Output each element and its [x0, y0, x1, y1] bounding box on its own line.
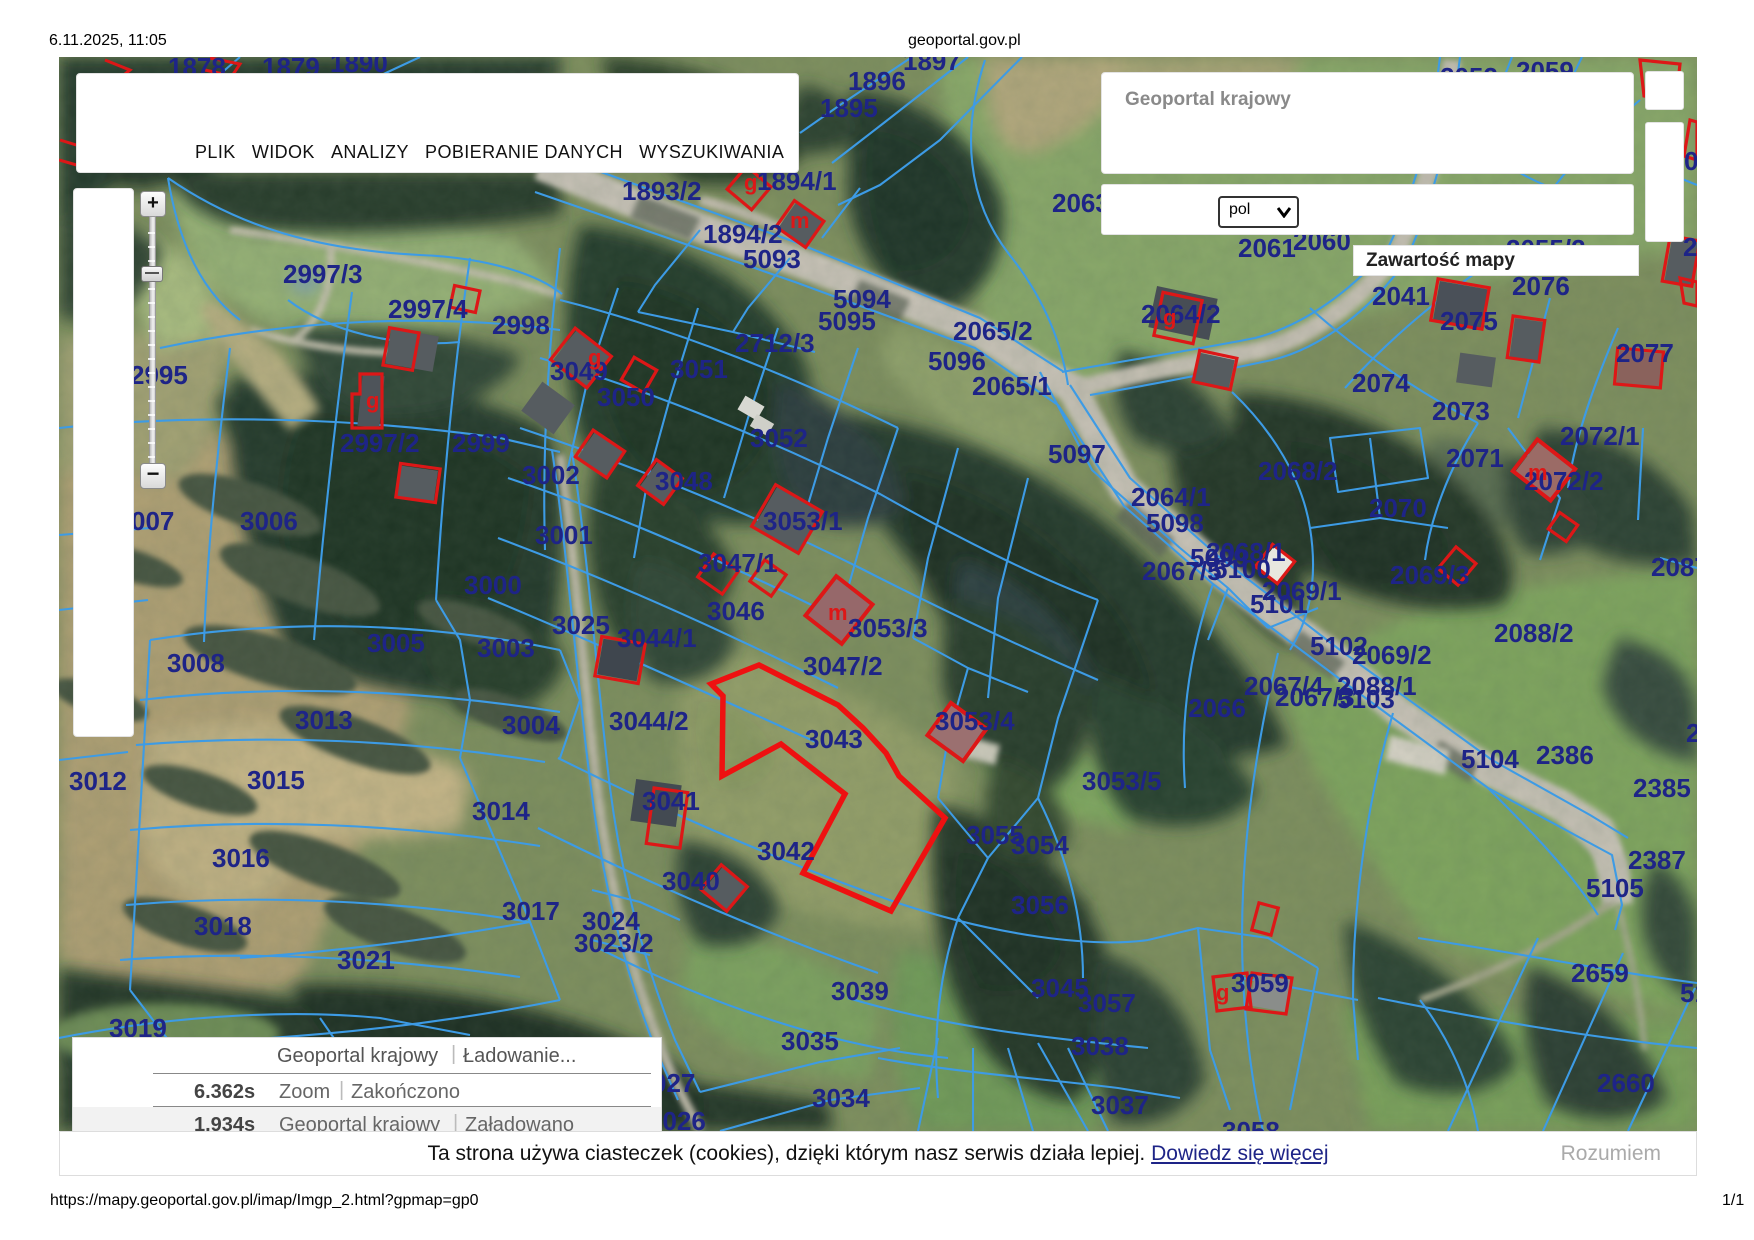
svg-text:2075: 2075	[1440, 306, 1498, 336]
svg-text:3013: 3013	[295, 705, 353, 735]
svg-text:3035: 3035	[781, 1026, 839, 1056]
svg-text:2068/2: 2068/2	[1258, 456, 1338, 486]
svg-text:3037: 3037	[1091, 1090, 1149, 1120]
svg-text:3040: 3040	[662, 866, 720, 896]
svg-text:3018: 3018	[194, 911, 252, 941]
svg-text:2077: 2077	[1616, 338, 1674, 368]
svg-text:3047/2: 3047/2	[803, 651, 883, 681]
svg-text:2041: 2041	[1372, 281, 1430, 311]
svg-text:2386: 2386	[1536, 740, 1594, 770]
svg-text:3053/3: 3053/3	[848, 613, 928, 643]
svg-text:3012: 3012	[69, 766, 127, 796]
svg-text:007: 007	[131, 506, 174, 536]
svg-text:5093: 5093	[743, 244, 801, 274]
svg-text:2995: 2995	[130, 360, 188, 390]
svg-text:2: 2	[1683, 232, 1697, 262]
svg-text:2066: 2066	[1188, 693, 1246, 723]
svg-text:3039: 3039	[831, 976, 889, 1006]
svg-text:2070: 2070	[1369, 493, 1427, 523]
svg-text:3017: 3017	[502, 896, 560, 926]
svg-text:3044/1: 3044/1	[617, 623, 697, 653]
svg-text:3048: 3048	[655, 466, 713, 496]
svg-text:3052: 3052	[750, 423, 808, 453]
svg-text:5104: 5104	[1461, 744, 1519, 774]
svg-text:m: m	[1528, 460, 1548, 485]
svg-text:3008: 3008	[167, 648, 225, 678]
svg-text:g: g	[1163, 305, 1176, 330]
svg-text:3053/4: 3053/4	[935, 706, 1015, 736]
svg-text:5101: 5101	[1250, 589, 1308, 619]
svg-text:3051: 3051	[670, 354, 728, 384]
svg-text:2065/2: 2065/2	[953, 316, 1033, 346]
svg-text:2069/2: 2069/2	[1352, 640, 1432, 670]
svg-text:51: 51	[1680, 978, 1697, 1008]
svg-text:1896: 1896	[848, 66, 906, 96]
svg-text:3015: 3015	[247, 765, 305, 795]
svg-text:3042: 3042	[757, 836, 815, 866]
svg-text:3053/1: 3053/1	[763, 506, 843, 536]
svg-text:5105: 5105	[1586, 873, 1644, 903]
svg-text:g: g	[744, 170, 757, 195]
svg-text:3043: 3043	[805, 724, 863, 754]
svg-text:2997/2: 2997/2	[340, 428, 420, 458]
svg-text:3005: 3005	[367, 628, 425, 658]
svg-text:g: g	[1216, 980, 1229, 1005]
svg-text:2072/1: 2072/1	[1560, 421, 1640, 451]
svg-text:2712/3: 2712/3	[735, 328, 815, 358]
svg-text:2088/1: 2088/1	[1337, 671, 1417, 701]
svg-text:2071: 2071	[1446, 443, 1504, 473]
svg-text:3044/2: 3044/2	[609, 706, 689, 736]
svg-text:3025: 3025	[552, 610, 610, 640]
svg-text:3021: 3021	[337, 945, 395, 975]
svg-text:3002: 3002	[522, 460, 580, 490]
svg-text:3054: 3054	[1011, 830, 1069, 860]
svg-text:3003: 3003	[477, 633, 535, 663]
svg-text:2385: 2385	[1633, 773, 1691, 803]
svg-text:2997/3: 2997/3	[283, 259, 363, 289]
svg-text:3000: 3000	[464, 570, 522, 600]
svg-text:m: m	[828, 600, 848, 625]
svg-text:3056: 3056	[1011, 890, 1069, 920]
svg-text:3047/1: 3047/1	[698, 548, 778, 578]
svg-text:3014: 3014	[472, 796, 530, 826]
svg-text:5098: 5098	[1146, 508, 1204, 538]
svg-text:2997/4: 2997/4	[388, 294, 468, 324]
svg-text:m: m	[790, 208, 810, 233]
svg-text:5097: 5097	[1048, 439, 1106, 469]
svg-text:3053/5: 3053/5	[1082, 766, 1162, 796]
svg-text:5095: 5095	[818, 306, 876, 336]
svg-text:3038: 3038	[1071, 1031, 1129, 1061]
svg-text:3016: 3016	[212, 843, 270, 873]
svg-text:2659: 2659	[1571, 958, 1629, 988]
svg-text:2998: 2998	[492, 310, 550, 340]
svg-text:1893/2: 1893/2	[622, 176, 702, 206]
svg-text:3041: 3041	[642, 786, 700, 816]
svg-text:1897: 1897	[903, 57, 961, 76]
svg-text:3001: 3001	[535, 520, 593, 550]
svg-text:g: g	[588, 345, 601, 370]
svg-text:3034: 3034	[812, 1083, 870, 1113]
svg-text:2067/5: 2067/5	[1142, 556, 1222, 586]
svg-text:3006: 3006	[240, 506, 298, 536]
svg-text:2069/3: 2069/3	[1390, 560, 1470, 590]
svg-text:3004: 3004	[502, 710, 560, 740]
svg-text:2073: 2073	[1432, 396, 1490, 426]
svg-text:238: 238	[1686, 718, 1697, 748]
svg-text:2660: 2660	[1597, 1068, 1655, 1098]
svg-text:2087: 2087	[1651, 552, 1697, 582]
svg-text:2064/2: 2064/2	[1141, 299, 1221, 329]
svg-text:2074: 2074	[1352, 368, 1410, 398]
svg-text:2061: 2061	[1238, 233, 1296, 263]
svg-text:g: g	[366, 388, 379, 413]
svg-text:3046: 3046	[707, 596, 765, 626]
svg-text:2387: 2387	[1628, 845, 1686, 875]
svg-text:2999: 2999	[452, 428, 510, 458]
svg-text:2088/2: 2088/2	[1494, 618, 1574, 648]
svg-text:3050: 3050	[597, 382, 655, 412]
svg-text:3023/2: 3023/2	[574, 928, 654, 958]
svg-text:3058: 3058	[1222, 1116, 1280, 1131]
svg-text:3045: 3045	[1031, 973, 1089, 1003]
svg-text:2065/1: 2065/1	[972, 371, 1052, 401]
svg-text:01: 01	[1684, 146, 1697, 176]
svg-text:1895: 1895	[820, 93, 878, 123]
svg-text:3059: 3059	[1231, 968, 1289, 998]
